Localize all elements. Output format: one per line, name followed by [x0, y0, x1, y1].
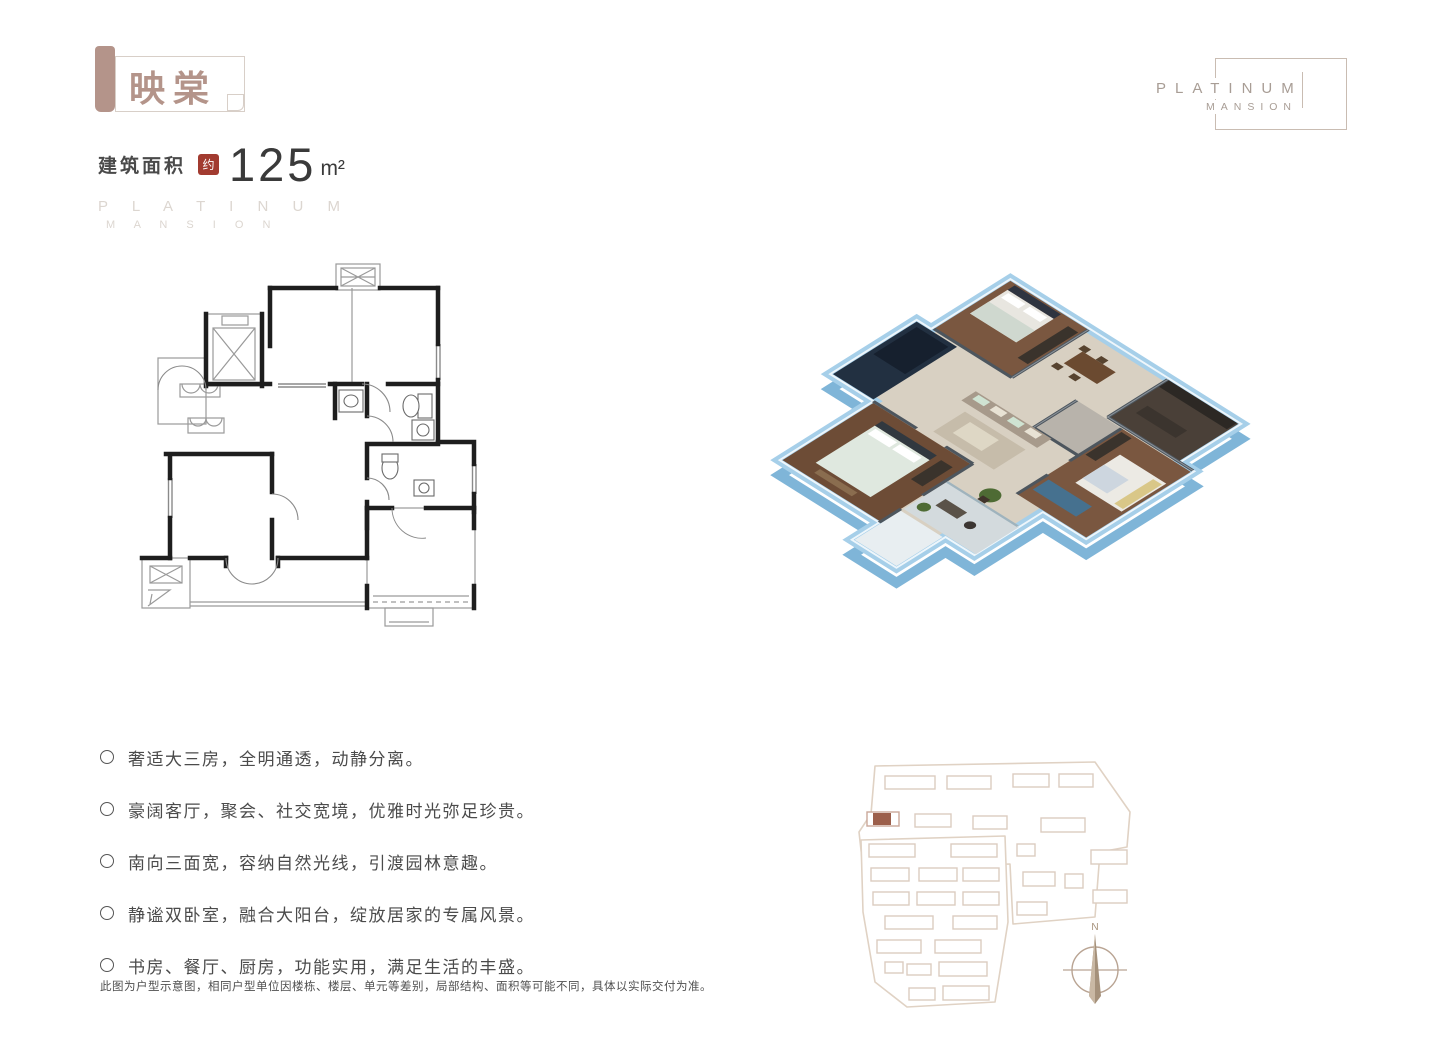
disclaimer-text: 此图为户型示意图，相同户型单位因楼栋、楼层、单元等差别，局部结构、面积等可能不同…	[100, 978, 760, 994]
feature-item: 奢适大三房，全明通透，动静分离。	[100, 744, 750, 770]
feature-text: 静谧双卧室，融合大阳台，绽放居家的专属风景。	[128, 901, 535, 926]
area-label: 建筑面积	[98, 151, 186, 178]
feature-text: 豪阔客厅，聚会、社交宽境，优雅时光弥足珍贵。	[128, 797, 535, 822]
circle-bullet-icon	[100, 854, 114, 868]
feature-item: 书房、餐厅、厨房，功能实用，满足生活的丰盛。	[100, 952, 750, 978]
circle-bullet-icon	[100, 958, 114, 972]
feature-item: 静谧双卧室，融合大阳台，绽放居家的专属风景。	[100, 900, 750, 926]
banner-page-curl	[227, 94, 244, 111]
banner-scroll-edge	[95, 46, 115, 112]
compass-icon: N	[1063, 922, 1127, 1004]
brand-line1: PLATINUM	[1150, 78, 1306, 99]
circle-bullet-icon	[100, 906, 114, 920]
circle-bullet-icon	[100, 802, 114, 816]
area-value: 125	[229, 141, 316, 188]
compass-north-label: N	[1091, 922, 1098, 933]
feature-item: 豪阔客厅，聚会、社交宽境，优雅时光弥足珍贵。	[100, 796, 750, 822]
watermark-line2: M A N S I O N	[106, 219, 350, 231]
circle-bullet-icon	[100, 750, 114, 764]
brand-line2: MANSION	[1202, 100, 1301, 114]
floor-plan-3d	[738, 228, 1262, 698]
brand-logo-box: PLATINUM MANSION	[1150, 56, 1350, 132]
title-banner: 映棠	[95, 46, 255, 118]
floor-plan-2d	[130, 256, 510, 646]
area-row: 建筑面积 约 125 m²	[98, 138, 345, 190]
feature-text: 奢适大三房，全明通透，动静分离。	[128, 745, 424, 770]
unit-name-title: 映棠	[129, 60, 217, 112]
feature-list: 奢适大三房，全明通透，动静分离。 豪阔客厅，聚会、社交宽境，优雅时光弥足珍贵。 …	[100, 744, 750, 1004]
approx-seal-icon: 约	[198, 154, 219, 175]
feature-text: 书房、餐厅、厨房，功能实用，满足生活的丰盛。	[128, 953, 535, 978]
highlighted-building	[867, 812, 899, 826]
area-unit: m²	[320, 147, 345, 181]
brand-divider	[1302, 72, 1303, 108]
feature-text: 南向三面宽，容纳自然光线，引渡园林意趣。	[128, 849, 498, 874]
watermark-line1: P L A T I N U M	[98, 198, 350, 215]
site-plan: N	[845, 752, 1175, 1022]
feature-item: 南向三面宽，容纳自然光线，引渡园林意趣。	[100, 848, 750, 874]
brand-watermark: P L A T I N U M M A N S I O N	[98, 198, 350, 231]
